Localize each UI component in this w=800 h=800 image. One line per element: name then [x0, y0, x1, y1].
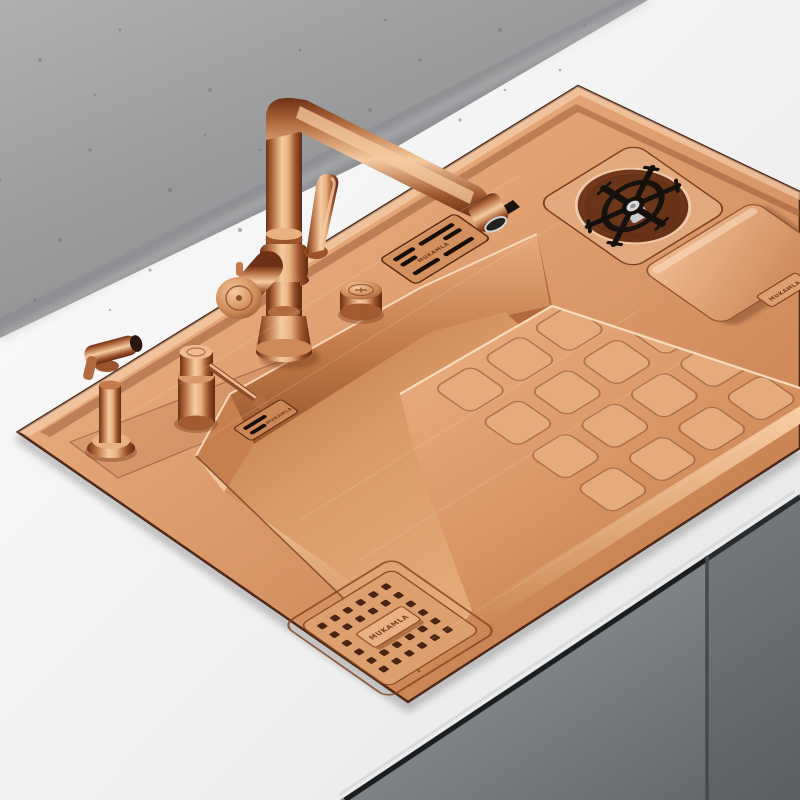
product-photo-stage: Brushed rose-gold copper multifunction k…	[0, 0, 800, 800]
control-knob	[338, 281, 384, 325]
sink-scene: Brushed rose-gold copper multifunction k…	[0, 0, 800, 800]
